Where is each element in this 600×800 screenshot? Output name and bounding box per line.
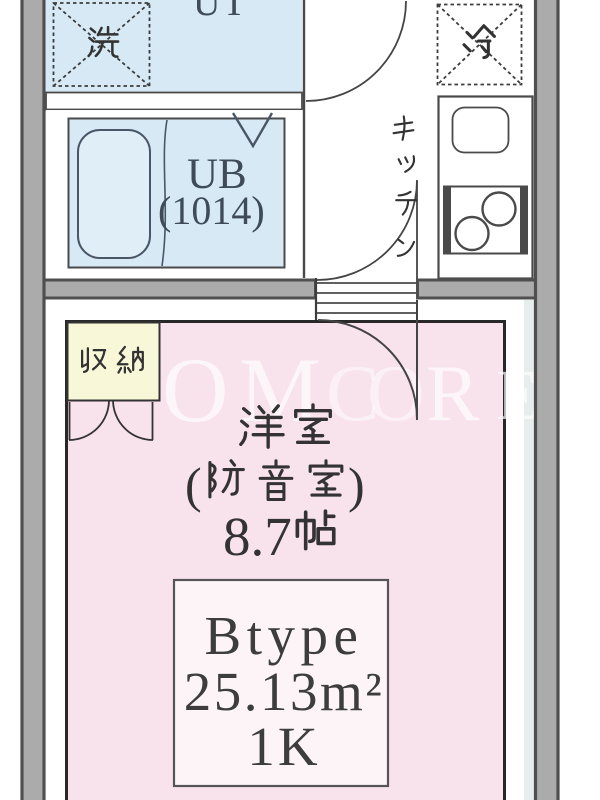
svg-text:1K: 1K [247,716,320,777]
svg-text:E: E [496,355,540,435]
svg-text:(: ( [185,457,202,513]
svg-text:O: O [162,339,228,441]
svg-text:8.7: 8.7 [223,506,292,567]
svg-text:R: R [426,350,480,438]
svg-text:(1014): (1014) [158,188,265,233]
svg-text:Btype: Btype [205,605,364,666]
svg-text:): ) [348,457,365,513]
svg-text:25.13m²: 25.13m² [184,661,385,722]
svg-text:UT: UT [193,0,248,24]
